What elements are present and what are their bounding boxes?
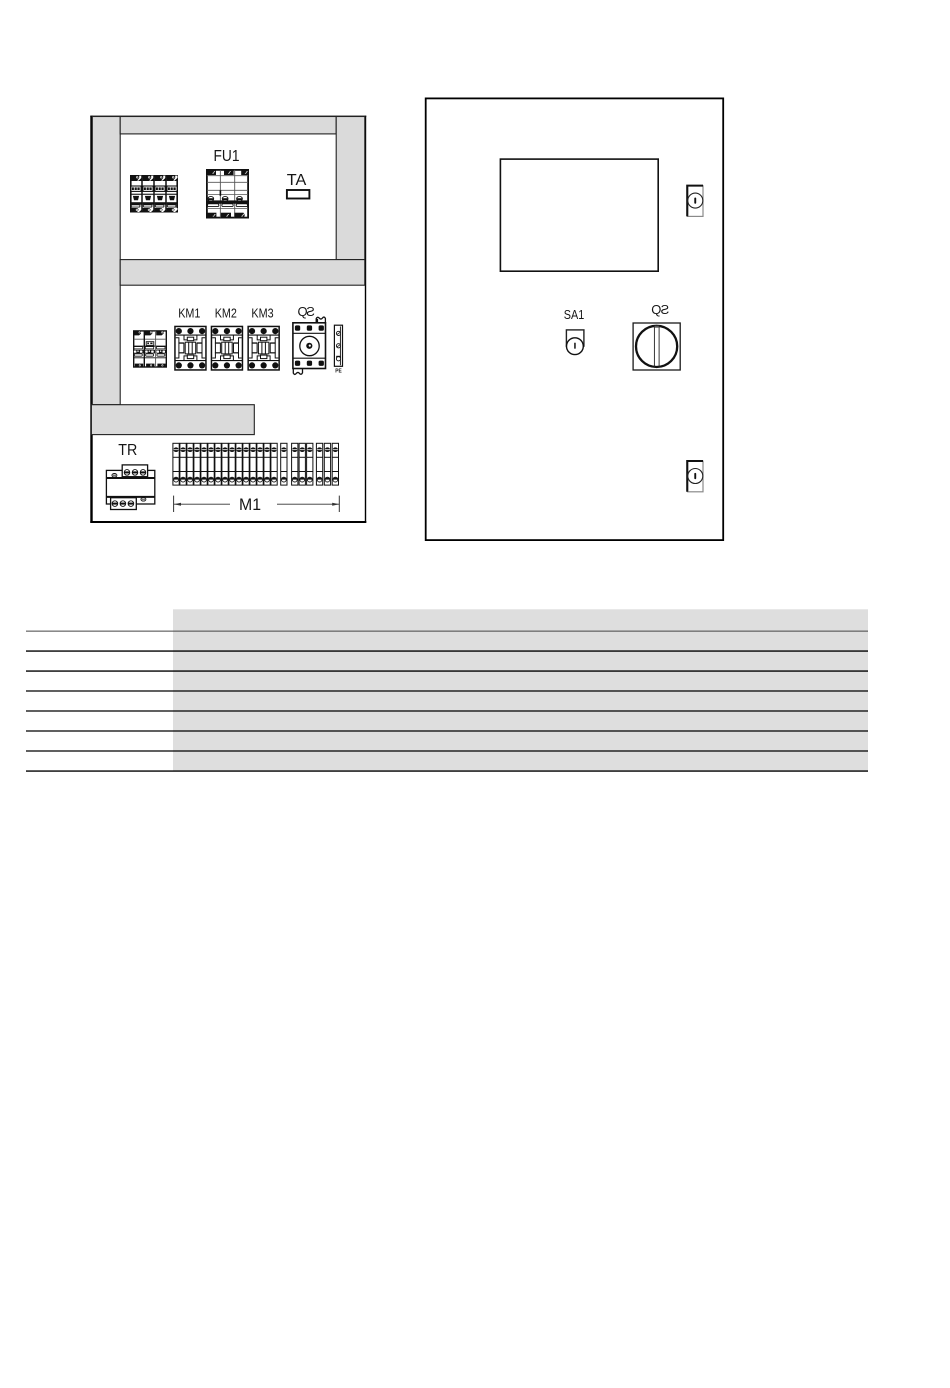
svg-text:Q: Q xyxy=(298,304,308,319)
svg-text:TR: TR xyxy=(118,442,137,459)
svg-text:KM3: KM3 xyxy=(251,306,273,320)
svg-text:KM1: KM1 xyxy=(178,306,200,320)
svg-text:Q: Q xyxy=(651,302,661,317)
svg-text:PE: PE xyxy=(335,369,342,375)
svg-text:KM2: KM2 xyxy=(215,306,237,320)
svg-text:S: S xyxy=(306,304,315,319)
svg-text:FU1: FU1 xyxy=(214,148,240,165)
svg-text:M1: M1 xyxy=(239,496,261,514)
svg-text:S: S xyxy=(660,302,669,317)
svg-text:TA: TA xyxy=(287,172,307,189)
svg-text:SA1: SA1 xyxy=(564,307,585,322)
